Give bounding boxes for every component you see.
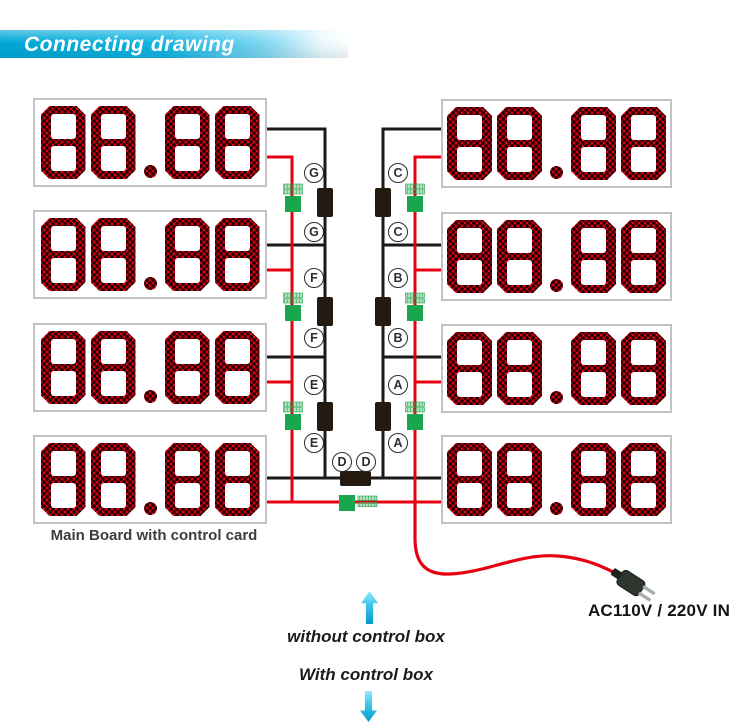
seven-seg-digit xyxy=(41,331,86,404)
led-display-panel-left-3 xyxy=(33,323,267,412)
bottom-green-terminal xyxy=(339,495,355,511)
seven-seg-digit xyxy=(497,220,542,293)
wire-label-a2: A xyxy=(388,433,408,453)
seven-segment-value xyxy=(35,218,265,291)
connecting-drawing-page: Connecting drawing xyxy=(0,0,750,724)
seven-segment-value xyxy=(443,107,670,180)
seven-seg-digit xyxy=(571,107,616,180)
decimal-dot xyxy=(550,502,563,515)
wire-label-e1: E xyxy=(304,375,324,395)
bottom-cable-connector xyxy=(340,471,371,486)
wire-label-g1: G xyxy=(304,163,324,183)
seven-seg-digit xyxy=(447,332,492,405)
seven-seg-digit xyxy=(571,220,616,293)
seven-seg-digit xyxy=(91,443,136,516)
led-display-panel-right-2 xyxy=(441,212,672,301)
seven-segment-value xyxy=(443,220,670,293)
led-display-panel-right-1 xyxy=(441,99,672,188)
seven-seg-digit xyxy=(621,220,666,293)
seven-seg-digit xyxy=(91,331,136,404)
seven-seg-digit xyxy=(91,218,136,291)
seven-seg-digit xyxy=(165,443,210,516)
seven-seg-digit xyxy=(497,107,542,180)
decimal-dot xyxy=(550,391,563,404)
seven-seg-digit xyxy=(447,220,492,293)
main-board-panel xyxy=(33,435,267,524)
seven-seg-digit xyxy=(621,443,666,516)
wire-label-a1: A xyxy=(388,375,408,395)
seven-seg-digit xyxy=(165,106,210,179)
wire-label-c2: C xyxy=(388,222,408,242)
decimal-dot xyxy=(144,277,157,290)
ac-input-label: AC110V / 220V IN xyxy=(577,601,741,621)
wire-label-f1: F xyxy=(304,268,324,288)
seven-seg-digit xyxy=(41,218,86,291)
seven-seg-digit xyxy=(41,106,86,179)
seven-segment-value xyxy=(35,331,265,404)
decimal-dot xyxy=(144,502,157,515)
main-board-caption: Main Board with control card xyxy=(40,527,268,544)
led-display-panel-right-4 xyxy=(441,435,672,524)
seven-segment-value xyxy=(35,443,265,516)
wire-label-d2: D xyxy=(356,452,376,472)
decimal-dot xyxy=(144,165,157,178)
power-plug-icon xyxy=(608,564,658,604)
wire-label-d1: D xyxy=(332,452,352,472)
seven-seg-digit xyxy=(447,107,492,180)
wire-label-f2: F xyxy=(304,328,324,348)
wire-label-e2: E xyxy=(304,433,324,453)
seven-seg-digit xyxy=(91,106,136,179)
led-display-panel-left-1 xyxy=(33,98,267,187)
wire-label-g2: G xyxy=(304,222,324,242)
decimal-dot xyxy=(550,166,563,179)
seven-seg-digit xyxy=(621,332,666,405)
wire-label-b1: B xyxy=(388,268,408,288)
seven-seg-digit xyxy=(571,443,616,516)
green-terminals xyxy=(285,196,423,511)
decimal-dot xyxy=(144,390,157,403)
without-control-box-label: without control box xyxy=(266,627,466,647)
seven-seg-digit xyxy=(497,443,542,516)
seven-seg-digit xyxy=(165,331,210,404)
led-display-panel-left-2 xyxy=(33,210,267,299)
seven-segment-value xyxy=(35,106,265,179)
with-control-box-label: With control box xyxy=(266,665,466,685)
seven-segment-value xyxy=(443,443,670,516)
seven-seg-digit xyxy=(497,332,542,405)
seven-seg-digit xyxy=(215,331,260,404)
seven-seg-digit xyxy=(165,218,210,291)
decimal-dot xyxy=(550,279,563,292)
seven-seg-digit xyxy=(215,218,260,291)
seven-seg-digit xyxy=(621,107,666,180)
seven-seg-digit xyxy=(215,443,260,516)
seven-seg-digit xyxy=(215,106,260,179)
seven-segment-value xyxy=(443,332,670,405)
seven-seg-digit xyxy=(571,332,616,405)
led-display-panel-right-3 xyxy=(441,324,672,413)
wire-label-b2: B xyxy=(388,328,408,348)
wire-label-c1: C xyxy=(388,163,408,183)
seven-seg-digit xyxy=(447,443,492,516)
seven-seg-digit xyxy=(41,443,86,516)
cable-connectors xyxy=(317,188,391,486)
